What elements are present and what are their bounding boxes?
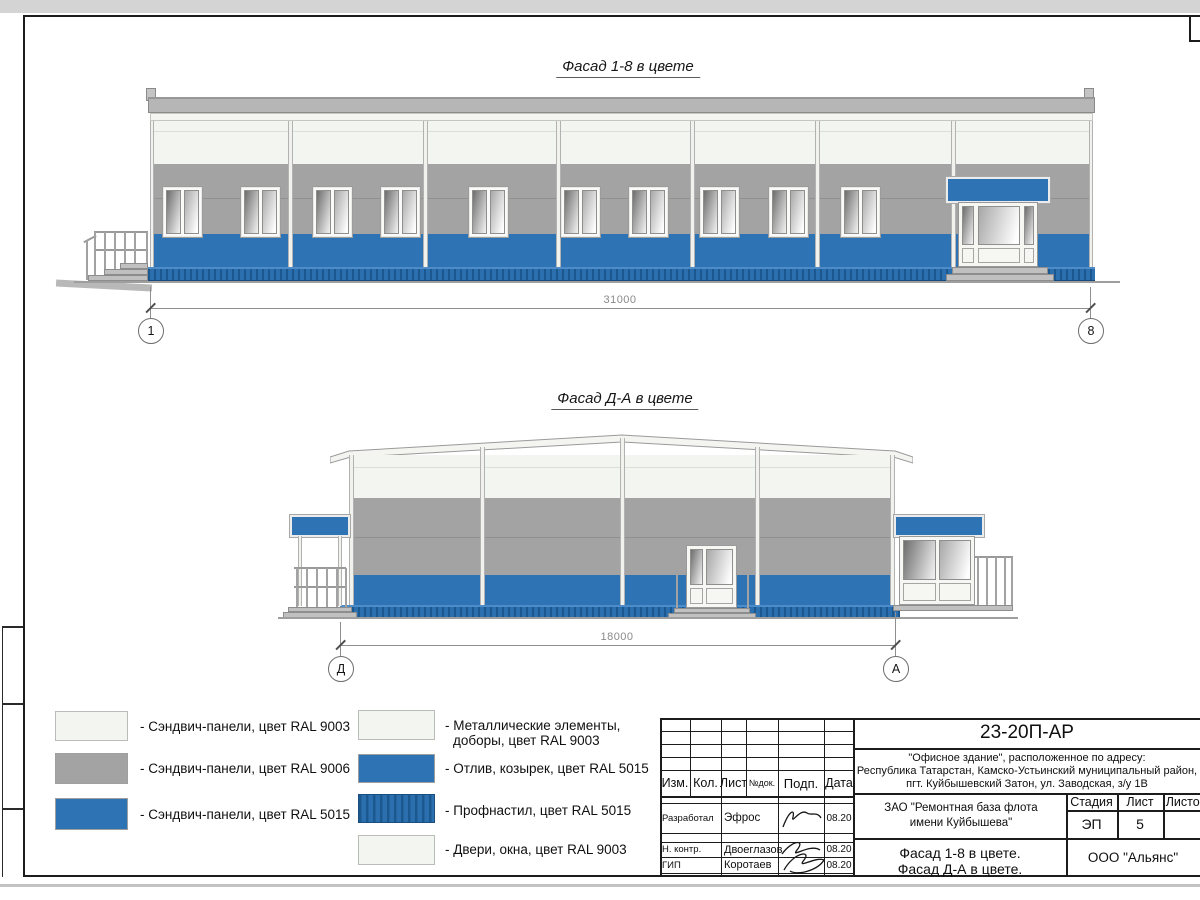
legend-label: - Сэндвич-панели, цвет RAL 9003 <box>140 719 350 734</box>
entrance-door-leaf <box>978 206 1020 263</box>
pilaster <box>620 438 625 605</box>
vestibule-platform <box>893 605 1013 611</box>
legend-swatch-metal <box>358 710 435 740</box>
tb-sheet-number: 5 <box>1117 810 1163 838</box>
sheet-bottom-edge <box>0 884 1200 887</box>
entrance-door-assembly <box>958 202 1038 267</box>
window <box>312 186 353 238</box>
vestibule-railing-right <box>975 556 1013 558</box>
tb-company: ООО "Альянс" <box>1066 838 1200 877</box>
tb-stage-value: ЭП <box>1066 810 1117 838</box>
tb-header-kol: Кол. <box>690 770 721 796</box>
pilaster <box>755 447 760 605</box>
tb-list-header: Лист <box>1117 793 1163 810</box>
window <box>699 186 740 238</box>
pilaster <box>288 121 293 267</box>
tb-role: Н. контр. <box>662 842 720 857</box>
tb-role: Разработал <box>662 803 720 833</box>
tb-address-line3: пгт. Куйбышевский Затон, ул. Заводская, … <box>854 777 1200 791</box>
ground-line <box>74 281 1120 283</box>
pilaster <box>423 121 428 267</box>
vestibule-canopy-right <box>896 517 982 535</box>
tb-date: 08.20 <box>824 857 854 873</box>
window <box>628 186 669 238</box>
drawing-sheet: Фасад 1-8 в цвете <box>0 0 1200 900</box>
signature <box>778 838 828 876</box>
tb-header-ndok: №док. <box>746 770 778 796</box>
porch-railing-left <box>294 567 346 569</box>
dimension-line <box>150 308 1090 309</box>
entrance-step <box>946 274 1054 281</box>
window <box>768 186 809 238</box>
tb-name: Эфрос <box>724 803 777 833</box>
facade-1-8-title: Фасад 1-8 в цвете <box>556 58 700 78</box>
axis-marker-d: Д <box>328 656 354 682</box>
corner-pilaster <box>349 455 354 605</box>
extension-line <box>340 622 341 656</box>
legend-label: - Отлив, козырек, цвет RAL 5015 <box>445 761 649 776</box>
dimension-value: 31000 <box>603 294 636 306</box>
porch-post <box>298 536 302 606</box>
axis-marker-8: 8 <box>1078 318 1104 344</box>
tb-date: 08.20 <box>824 803 854 833</box>
tb-stage-header: Стадия <box>1066 793 1117 810</box>
window <box>468 186 509 238</box>
corner-stamp-box <box>1189 15 1200 42</box>
axis-marker-1: 1 <box>138 318 164 344</box>
tb-client-line1: ЗАО "Ремонтная база флота <box>856 801 1066 815</box>
stairs-steps-left <box>120 263 148 269</box>
legend-label: - Двери, окна, цвет RAL 9003 <box>445 842 627 857</box>
vestibule-glazing <box>899 536 975 605</box>
legend-swatch-doors <box>358 835 435 865</box>
margin-frame-line <box>2 808 23 810</box>
legend-label: - Металлические элементы, <box>445 718 620 733</box>
window <box>162 186 203 238</box>
stairs-railing-left <box>94 249 148 251</box>
margin-frame-line <box>2 626 3 877</box>
tb-header-podp: Подп. <box>778 770 824 796</box>
window <box>560 186 601 238</box>
window <box>840 186 881 238</box>
dimension-line <box>340 645 895 646</box>
porch-canopy-left <box>292 517 348 535</box>
extension-line <box>150 287 151 318</box>
window <box>240 186 281 238</box>
stairs-railing-left <box>94 231 148 233</box>
tb-drawing-title-line2: Фасад Д-А в цвете. <box>854 861 1066 876</box>
pilaster <box>690 121 695 267</box>
tb-drawing-title-line1: Фасад 1-8 в цвете. <box>854 845 1066 860</box>
dimension-value: 18000 <box>600 631 633 643</box>
window <box>380 186 421 238</box>
roof-fascia <box>150 113 1093 121</box>
legend-label: доборы, цвет RAL 9003 <box>453 733 600 748</box>
tb-address-line2: Республика Татарстан, Камско-Устьинский … <box>854 764 1200 778</box>
sheet-top-edge <box>0 0 1200 13</box>
tb-header-izm: Изм. <box>660 770 690 796</box>
tb-name: Коротаев <box>724 857 777 873</box>
door-handrail <box>676 563 678 608</box>
ground-line-2 <box>278 617 1018 619</box>
porch-post <box>338 536 342 606</box>
legend-swatch-profnastil <box>358 794 435 823</box>
legend-swatch-ral9006 <box>55 753 128 784</box>
door-handrail <box>747 563 749 608</box>
entrance-canopy <box>948 179 1048 201</box>
legend-label: - Сэндвич-панели, цвет RAL 9006 <box>140 761 350 776</box>
tb-date: 08.20 <box>824 842 854 857</box>
door <box>686 545 737 608</box>
pilaster <box>480 447 485 605</box>
legend-swatch-ral9003 <box>55 711 128 741</box>
tb-doc-number: 23-20П-АР <box>854 718 1200 748</box>
corner-pilaster <box>150 121 154 267</box>
margin-frame-line <box>2 703 23 705</box>
tb-name: Двоеглазов <box>724 842 777 857</box>
stairs-steps-left <box>104 269 148 275</box>
extension-line <box>1090 287 1091 318</box>
extension-line <box>895 612 896 656</box>
corner-pilaster <box>890 455 895 605</box>
porch-railing-left <box>294 586 346 588</box>
legend-swatch-otliv <box>358 754 435 783</box>
pilaster <box>815 121 820 267</box>
corner-pilaster <box>1089 121 1093 267</box>
legend-label: - Профнастил, цвет RAL 5015 <box>445 803 631 818</box>
tb-role: ГИП <box>662 857 720 873</box>
roof-cap <box>148 97 1095 113</box>
tb-header-list: Лист <box>721 770 746 796</box>
legend-label: - Сэндвич-панели, цвет RAL 5015 <box>140 807 350 822</box>
facade-d-a-title: Фасад Д-А в цвете <box>551 390 698 410</box>
signature <box>780 805 824 833</box>
legend-swatch-ral5015 <box>55 798 128 830</box>
tb-header-data: Дата <box>824 770 854 796</box>
tb-listov-header: Листов <box>1163 793 1200 810</box>
axis-marker-a: А <box>883 656 909 682</box>
entrance-step <box>952 267 1048 274</box>
tb-client-line2: имени Куйбышева" <box>856 816 1066 830</box>
tb-address-line1: "Офисное здание", расположенное по адрес… <box>854 751 1200 765</box>
margin-frame-line <box>2 626 23 628</box>
